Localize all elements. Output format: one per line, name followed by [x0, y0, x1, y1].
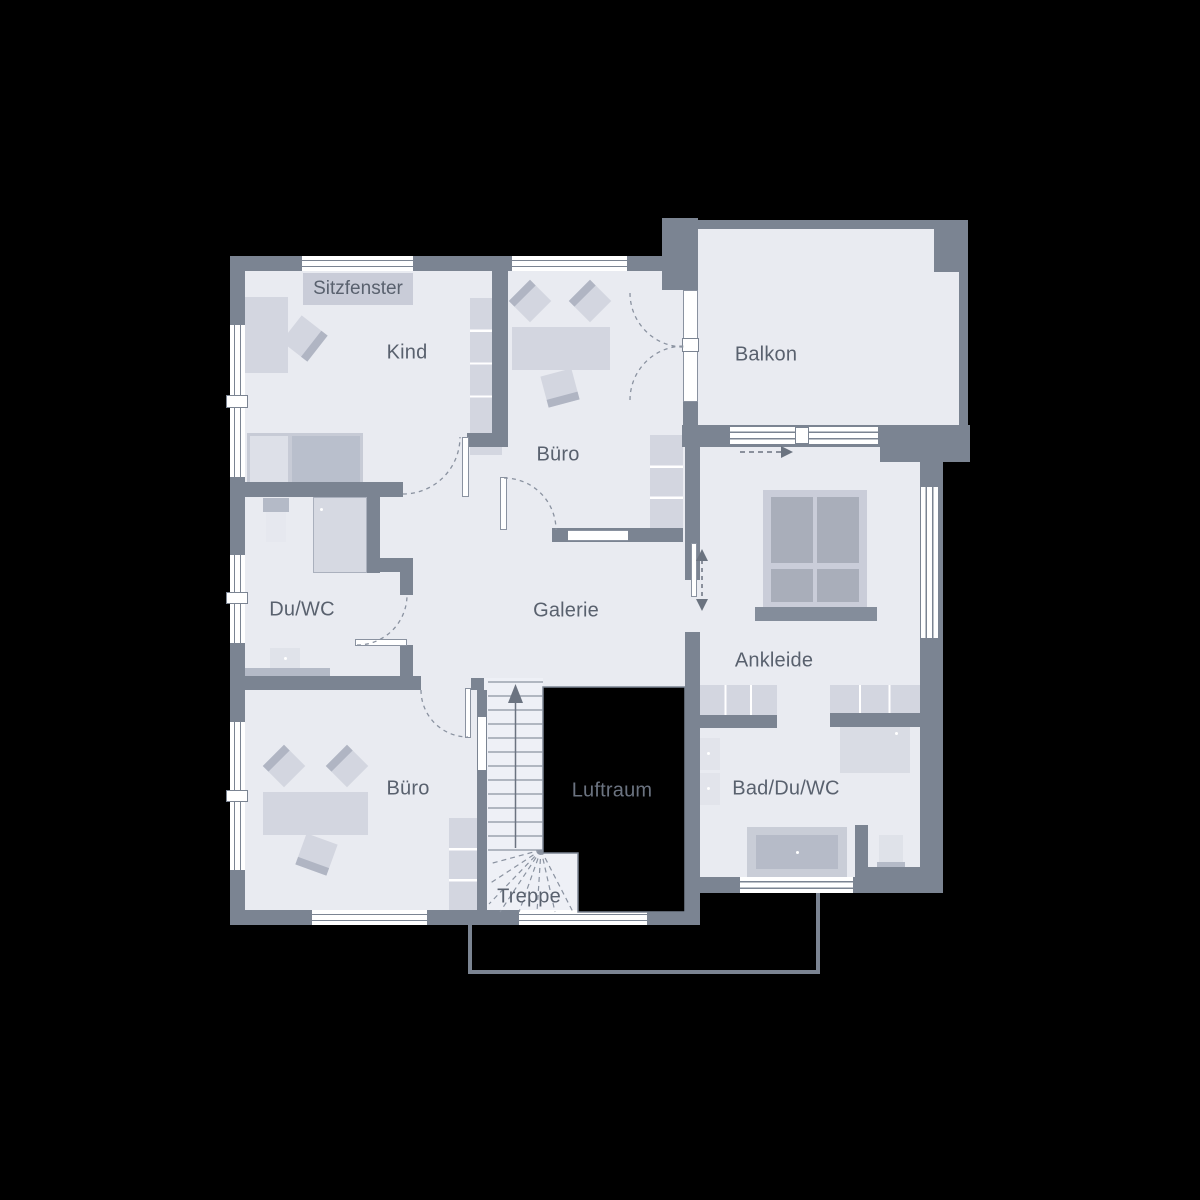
door-leaf — [355, 639, 407, 646]
wall — [830, 713, 920, 727]
room-label-kind: Kind — [387, 342, 428, 365]
room-label-buero-bottom: Büro — [386, 778, 429, 801]
window-handle — [226, 395, 248, 408]
window — [312, 910, 427, 925]
toilet — [879, 835, 903, 862]
wall — [880, 447, 970, 462]
wardrobe-panel — [771, 569, 813, 602]
window-handle — [226, 592, 248, 604]
sitzfenster-box: Sitzfenster — [303, 273, 413, 305]
door-handle — [682, 338, 699, 352]
window-handle — [226, 790, 248, 802]
wall — [867, 867, 920, 878]
room-label-galerie: Galerie — [533, 600, 599, 623]
door-leaf — [462, 437, 469, 497]
wardrobe-panel — [771, 497, 813, 563]
interior-glazing — [568, 530, 628, 541]
closet-row — [700, 685, 777, 715]
wall — [934, 220, 968, 272]
window — [740, 877, 853, 893]
bathtub-dot — [796, 851, 799, 854]
room-label-luftraum: Luftraum — [572, 780, 653, 803]
room-label-ankleide: Ankleide — [735, 650, 813, 673]
interior-glazing — [478, 717, 486, 770]
wardrobe-panel — [817, 569, 859, 602]
wall — [687, 715, 777, 728]
wardrobe — [245, 297, 288, 373]
bed-mattress — [292, 436, 360, 482]
toilet — [266, 512, 286, 542]
wardrobe-ledge — [755, 607, 877, 621]
window — [302, 256, 413, 271]
window — [512, 256, 627, 271]
desk — [263, 792, 368, 835]
door-leaf — [465, 688, 471, 738]
balkon-floor — [698, 228, 962, 425]
room-label-balkon: Balkon — [735, 344, 797, 367]
room-label-du-wc: Du/WC — [269, 599, 334, 622]
drain-dot — [320, 508, 323, 511]
wall — [698, 220, 962, 229]
bed-pillow — [250, 436, 288, 482]
sitzfenster-label: Sitzfenster — [313, 278, 403, 300]
wall — [492, 256, 508, 447]
sink-dot — [707, 752, 710, 755]
wall — [467, 433, 508, 447]
drain-dot — [895, 732, 898, 735]
room-label-buero-top: Büro — [536, 444, 579, 467]
wall — [662, 218, 698, 290]
sink-dot — [284, 657, 287, 660]
floor-plan: Sitzfenster Kind Büro Balkon Du/WC Galer… — [0, 0, 1200, 1200]
shelf — [650, 435, 683, 530]
wall — [230, 482, 403, 497]
wall — [400, 645, 413, 678]
desk — [512, 327, 610, 370]
wardrobe-panel — [817, 497, 859, 563]
room-label-bad-du-wc: Bad/Du/WC — [732, 778, 839, 801]
sliding-door-leaf — [691, 543, 697, 597]
closet-row — [830, 685, 920, 713]
room-label-treppe: Treppe — [497, 886, 561, 909]
wall — [683, 402, 698, 425]
wall — [230, 676, 421, 690]
window — [921, 487, 938, 638]
toilet-tank — [263, 498, 289, 512]
wall — [471, 678, 484, 690]
shower — [840, 725, 910, 773]
wall — [685, 632, 700, 925]
wall — [372, 558, 413, 572]
window-handle — [795, 427, 809, 444]
door-leaf — [500, 477, 507, 530]
wall — [400, 572, 413, 595]
window — [519, 910, 647, 925]
sink-dot — [707, 787, 710, 790]
